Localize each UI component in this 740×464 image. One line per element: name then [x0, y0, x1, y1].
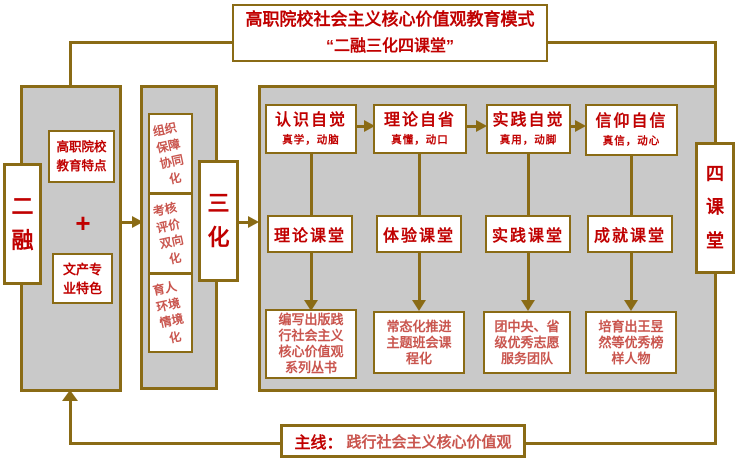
box-education-environment-text: 育人 环境 情境 化 [152, 278, 189, 348]
connector-col3-mid-bot [527, 252, 530, 301]
practice-classroom-box: 实践课堂 [485, 215, 571, 253]
outcome-book-series-box: 编写出版践 行社会主义 核心价值观 系列丛书 [265, 309, 357, 379]
plus-sign: + [60, 205, 106, 241]
arrow-up-into-left-panel-icon [62, 390, 78, 401]
connector-bottom-right-h [524, 442, 717, 445]
box-organization-guarantee-text: 组织 保障 协同 化 [152, 119, 189, 189]
practice-awareness-sub: 真用，动脚 [500, 134, 558, 147]
cognitive-awareness-label: 认识自觉 [275, 111, 347, 131]
connector-col3-top-mid [527, 153, 530, 217]
connector-title-left-v [69, 41, 72, 88]
diagram-title-line1: 高职院校社会主义核心价值观教育模式 [246, 6, 535, 33]
connector-title-left-h [69, 41, 234, 44]
cognitive-awareness-box: 认识自觉 真学，动脑 [265, 104, 357, 154]
arrow-col2-down-icon [412, 300, 426, 311]
theory-introspection-sub: 真懂，动口 [391, 134, 449, 147]
outcome-theme-class-box: 常态化推进 主题班会课 程化 [373, 311, 465, 374]
box-assessment-evaluation: 考核 评价 双向 化 [148, 193, 193, 274]
arrow-col3-down-icon [521, 300, 535, 311]
faith-confidence-label: 信仰自信 [595, 112, 667, 132]
experience-classroom-box: 体验课堂 [376, 215, 462, 253]
arrow-left-to-middle-icon [132, 216, 143, 228]
connector-col1-mid-bot [310, 252, 313, 301]
practice-awareness-box: 实践自觉 真用，动脚 [486, 104, 571, 154]
label-si-ketang: 四 课 堂 [695, 142, 735, 274]
outcome-volunteer-team-box: 团中央、省 级优秀志愿 服务团队 [483, 311, 571, 374]
connector-col2-mid-bot [418, 252, 421, 301]
mainline-box: 主线： 践行社会主义核心价值观 [280, 424, 526, 458]
achievement-classroom-box: 成就课堂 [587, 215, 673, 253]
theory-introspection-box: 理论自省 真懂，动口 [373, 104, 467, 154]
label-san-hua: 三 化 [198, 160, 239, 282]
theory-classroom-box: 理论课堂 [267, 215, 353, 253]
connector-col4-mid-bot [630, 252, 633, 301]
box-organization-guarantee: 组织 保障 协同 化 [148, 113, 193, 194]
faith-confidence-sub: 真信，动心 [603, 135, 661, 148]
connector-right-v-top [714, 41, 717, 88]
label-er-rong: 二 融 [3, 163, 42, 285]
arrow-col4-down-icon [624, 300, 638, 311]
diagram-title-line2: “二融三化四课堂” [326, 33, 454, 60]
box-assessment-evaluation-text: 考核 评价 双向 化 [152, 199, 189, 269]
connector-col4-top-mid [630, 153, 633, 217]
outcome-role-model-box: 培育出王昱 然等优秀榜 样人物 [585, 311, 677, 374]
theory-introspection-label: 理论自省 [384, 111, 456, 131]
connector-bottom-left-h [69, 442, 283, 445]
diagram-canvas: 高职院校社会主义核心价值观教育模式 “二融三化四课堂” 二 融 高职院校 教育特… [0, 0, 740, 464]
mainline-label: 主线： [294, 429, 342, 453]
box-education-environment: 育人 环境 情境 化 [148, 273, 193, 353]
connector-col1-top-mid [310, 153, 313, 217]
connector-title-right-h [546, 41, 717, 44]
box-vocational-education-features: 高职院校 教育特点 [48, 130, 115, 183]
box-major-specialty-features: 文产专 业特色 [52, 253, 113, 304]
mainline-text: 践行社会主义核心价值观 [347, 431, 512, 452]
connector-bottom-left-v [69, 400, 72, 445]
connector-col2-top-mid [418, 153, 421, 217]
diagram-title-box: 高职院校社会主义核心价值观教育模式 “二融三化四课堂” [232, 4, 548, 62]
connector-right-v-bottom [714, 390, 717, 445]
faith-confidence-box: 信仰自信 真信，动心 [585, 104, 678, 156]
arrow-sanhua-to-right-icon [248, 216, 259, 228]
cognitive-awareness-sub: 真学，动脑 [282, 134, 340, 147]
practice-awareness-label: 实践自觉 [492, 111, 564, 131]
